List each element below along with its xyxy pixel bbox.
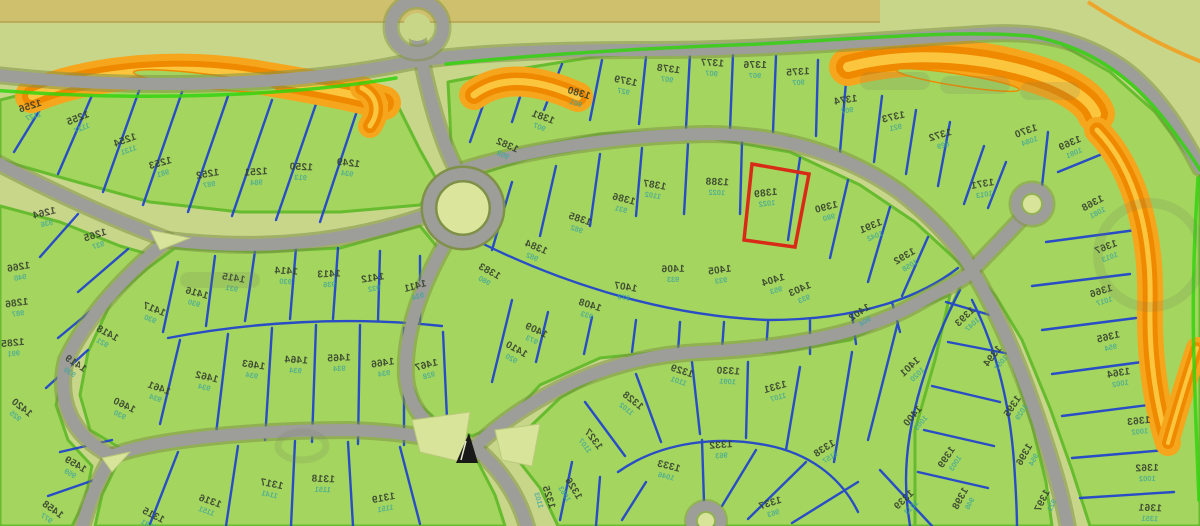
svg-text:1376: 1376 (743, 60, 767, 71)
svg-text:963: 963 (715, 451, 728, 461)
svg-text:1414: 1414 (274, 265, 298, 277)
svg-text:933: 933 (667, 275, 680, 284)
svg-text:1464: 1464 (284, 354, 308, 366)
lot-label: 13881022 (705, 177, 729, 198)
svg-text:1251: 1251 (244, 166, 268, 179)
map-canvas[interactable]: 1249934125091312519841252987125398112541… (0, 0, 1200, 526)
svg-text:934: 934 (332, 364, 346, 374)
svg-text:1361: 1361 (1138, 503, 1162, 515)
svg-text:1002: 1002 (1131, 426, 1149, 437)
svg-text:934: 934 (244, 370, 258, 381)
svg-text:1413: 1413 (317, 268, 341, 280)
svg-text:907: 907 (705, 69, 718, 79)
svg-text:933: 933 (714, 275, 728, 286)
svg-text:934: 934 (288, 366, 302, 376)
svg-text:984: 984 (249, 178, 263, 188)
cul-de-sac-bottom (691, 506, 721, 526)
svg-text:930: 930 (279, 277, 292, 287)
svg-text:934: 934 (340, 168, 354, 178)
svg-text:907: 907 (792, 78, 805, 88)
junction-island (495, 424, 540, 466)
svg-text:1318: 1318 (311, 474, 335, 486)
svg-text:1351: 1351 (1141, 514, 1158, 524)
svg-text:1388: 1388 (705, 177, 729, 189)
svg-text:1406: 1406 (661, 264, 685, 275)
svg-text:991: 991 (7, 348, 20, 358)
svg-text:1362: 1362 (1135, 463, 1159, 475)
svg-text:913: 913 (294, 173, 307, 182)
lot-map: 1249934125091312519841252987125398112541… (0, 0, 1200, 526)
svg-text:907: 907 (749, 71, 762, 80)
svg-text:1022: 1022 (708, 188, 725, 198)
lot-label: 13611351 (1138, 503, 1162, 524)
svg-text:1332: 1332 (709, 439, 733, 452)
svg-text:1375: 1375 (786, 66, 810, 79)
svg-text:907: 907 (660, 74, 674, 84)
svg-text:1151: 1151 (314, 485, 331, 495)
svg-text:1250: 1250 (289, 162, 313, 174)
svg-text:1465: 1465 (327, 352, 351, 364)
svg-text:936: 936 (323, 280, 336, 290)
cul-de-sac-right (1016, 188, 1048, 220)
svg-text:1002: 1002 (1139, 474, 1156, 484)
svg-text:987: 987 (11, 308, 25, 319)
svg-text:1091: 1091 (719, 377, 736, 387)
roundabout-top (391, 1, 443, 53)
roundabout-main (429, 174, 497, 242)
svg-text:1377: 1377 (700, 57, 724, 69)
lot-label: 13301091 (716, 365, 741, 386)
